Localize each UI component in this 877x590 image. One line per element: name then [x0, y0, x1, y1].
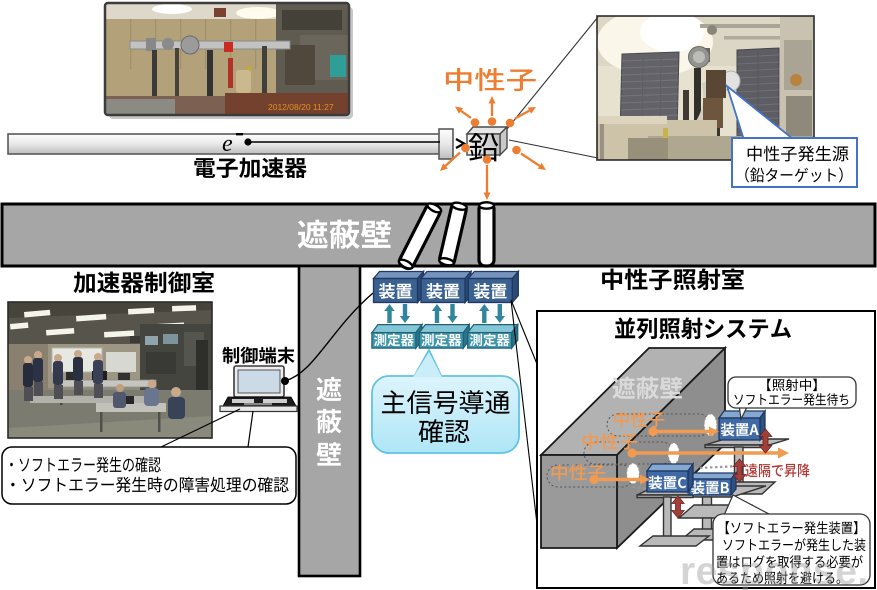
svg-text:response.: response. [680, 550, 869, 590]
svg-text:2012/08/20 11:27: 2012/08/20 11:27 [268, 102, 334, 112]
svg-text:e: e [222, 131, 233, 157]
